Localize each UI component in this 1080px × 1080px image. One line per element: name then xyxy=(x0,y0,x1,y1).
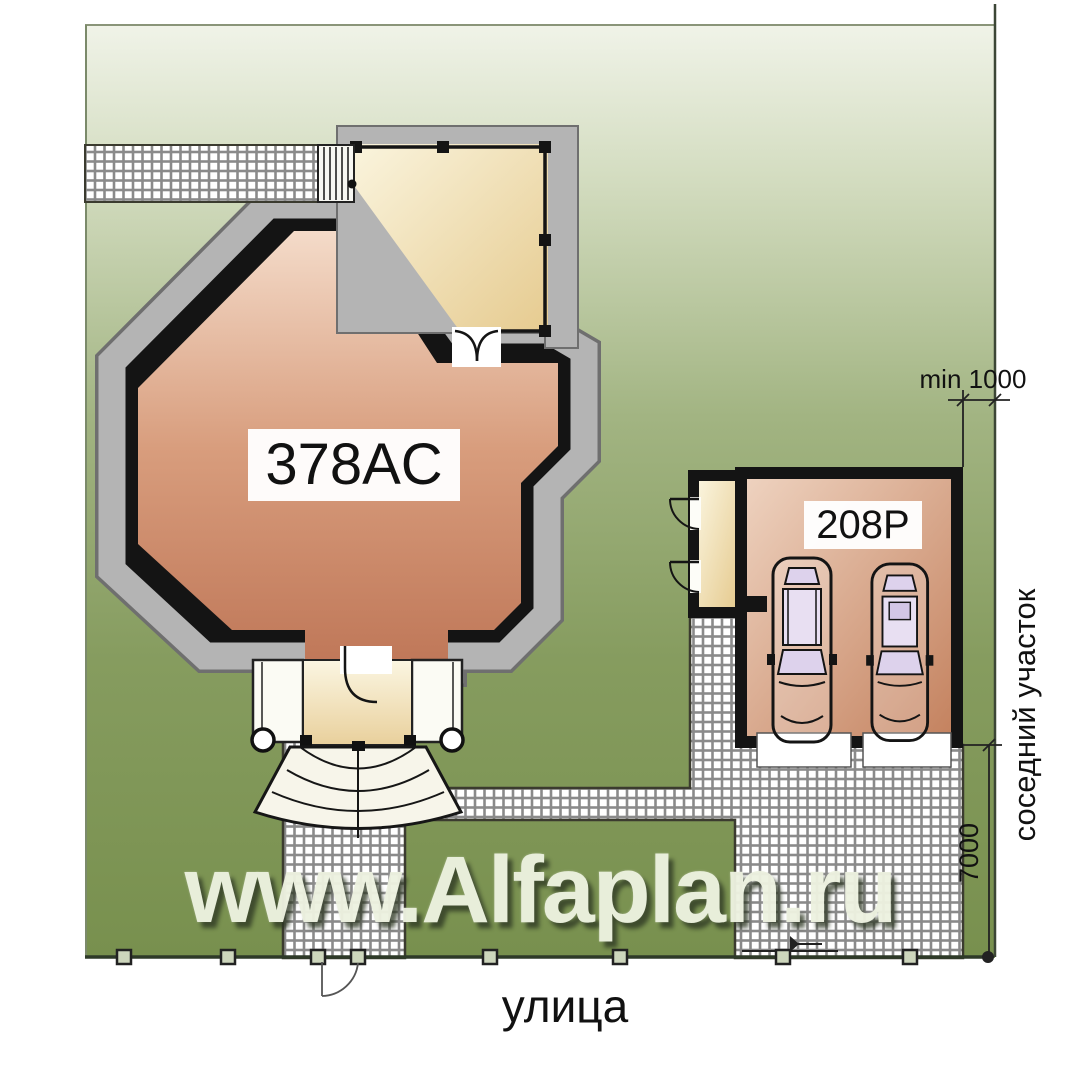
terrace xyxy=(337,126,578,367)
site-plan-drawing: 378AC 208P min 1000 7000 соседний участо… xyxy=(0,0,1080,1080)
dim-7000-text: 7000 xyxy=(954,823,984,883)
porch-column-right xyxy=(441,729,463,751)
porch-post-left xyxy=(300,735,312,747)
street-label: улица xyxy=(502,980,629,1032)
boundary-corner-point xyxy=(982,951,994,963)
neighbor-plot-label: соседний участок xyxy=(1007,588,1042,841)
terrace-door xyxy=(452,327,501,367)
dim-min-1000-text: min 1000 xyxy=(920,364,1027,394)
porch xyxy=(252,646,463,838)
garage-wall-stub xyxy=(747,596,767,612)
car-left xyxy=(767,558,837,742)
entry-steps xyxy=(318,145,357,202)
car-right xyxy=(866,564,933,741)
house-label-text: 378AC xyxy=(265,432,442,497)
garage-annex-floor xyxy=(699,481,737,607)
garage-label-text: 208P xyxy=(816,503,909,547)
fence-gate xyxy=(322,962,358,996)
walkway xyxy=(85,145,357,202)
site-plan-canvas: 378AC 208P min 1000 7000 соседний участо… xyxy=(0,0,1080,1080)
house-label: 378AC xyxy=(248,429,460,501)
garage-label: 208P xyxy=(804,501,922,549)
stair-rail-post xyxy=(348,180,357,189)
porch-post-right xyxy=(404,735,416,747)
porch-column-left xyxy=(252,729,274,751)
